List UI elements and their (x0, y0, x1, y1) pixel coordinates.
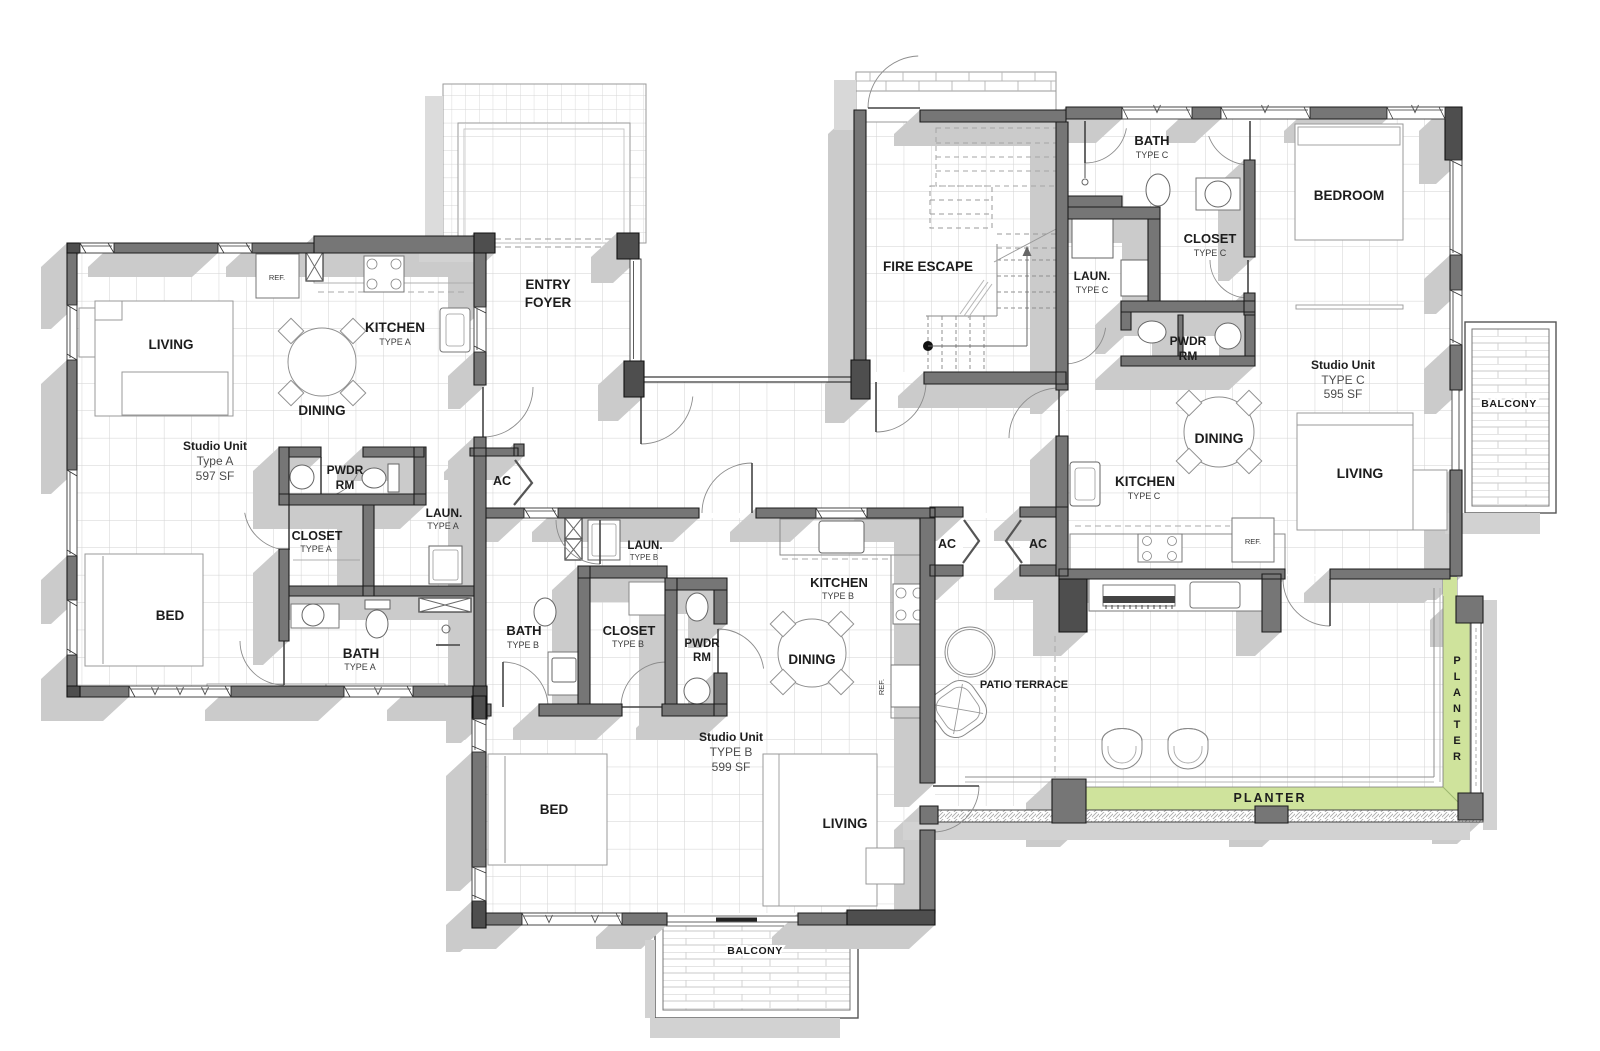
svg-text:CLOSET: CLOSET (292, 529, 343, 543)
svg-text:BEDROOM: BEDROOM (1314, 188, 1385, 203)
svg-text:BATH: BATH (343, 646, 380, 661)
svg-text:599 SF: 599 SF (712, 760, 751, 774)
svg-text:N: N (1453, 703, 1461, 715)
svg-text:REF.: REF. (877, 679, 886, 695)
svg-text:PWDR: PWDR (684, 638, 720, 650)
svg-text:LIVING: LIVING (822, 816, 867, 831)
svg-text:Studio Unit: Studio Unit (183, 439, 247, 453)
svg-text:AC: AC (493, 474, 511, 488)
svg-text:AC: AC (938, 537, 956, 551)
svg-text:KITCHEN: KITCHEN (810, 575, 868, 590)
svg-text:TYPE C: TYPE C (1136, 150, 1169, 160)
svg-text:TYPE B: TYPE B (507, 640, 539, 650)
svg-text:LAUN.: LAUN. (426, 506, 463, 520)
svg-text:E: E (1453, 735, 1460, 747)
svg-text:CLOSET: CLOSET (1184, 231, 1237, 246)
svg-text:BED: BED (540, 802, 569, 817)
svg-text:TYPE A: TYPE A (344, 662, 376, 672)
svg-text:TYPE A: TYPE A (379, 337, 411, 347)
svg-text:AC: AC (1029, 537, 1047, 551)
svg-text:595 SF: 595 SF (1324, 387, 1363, 401)
svg-text:TYPE C: TYPE C (1128, 491, 1161, 501)
svg-text:LIVING: LIVING (1337, 465, 1384, 481)
svg-text:CLOSET: CLOSET (603, 623, 656, 638)
svg-text:TYPE B: TYPE B (710, 745, 753, 759)
svg-text:RM: RM (1179, 349, 1198, 363)
svg-text:PATIO TERRACE: PATIO TERRACE (980, 679, 1068, 691)
svg-text:BATH: BATH (1134, 133, 1169, 148)
svg-text:ENTRY: ENTRY (525, 277, 570, 292)
svg-text:PWDR: PWDR (327, 463, 364, 477)
svg-text:TYPE A: TYPE A (300, 544, 332, 554)
svg-text:TYPE C: TYPE C (1321, 373, 1365, 387)
svg-text:Type A: Type A (197, 454, 234, 468)
svg-text:FIRE ESCAPE: FIRE ESCAPE (883, 259, 973, 274)
svg-text:Studio Unit: Studio Unit (699, 730, 763, 744)
svg-text:DINING: DINING (298, 403, 345, 418)
svg-text:TYPE B: TYPE B (612, 639, 644, 649)
svg-text:RM: RM (693, 652, 711, 664)
svg-text:LAUN.: LAUN. (1074, 269, 1111, 283)
svg-text:DINING: DINING (1195, 430, 1244, 446)
svg-text:FOYER: FOYER (525, 295, 572, 310)
svg-text:BED: BED (156, 608, 185, 623)
svg-text:KITCHEN: KITCHEN (1115, 474, 1175, 489)
svg-text:BALCONY: BALCONY (727, 945, 782, 957)
svg-text:LIVING: LIVING (148, 337, 193, 352)
svg-text:TYPE A: TYPE A (427, 521, 459, 531)
svg-text:REF.: REF. (1245, 537, 1261, 546)
svg-text:BALCONY: BALCONY (1481, 398, 1536, 410)
svg-text:REF.: REF. (269, 273, 285, 282)
svg-text:PWDR: PWDR (1170, 334, 1207, 348)
svg-text:L: L (1454, 671, 1461, 683)
svg-text:BATH: BATH (506, 623, 541, 638)
svg-text:KITCHEN: KITCHEN (365, 320, 425, 335)
svg-text:Studio Unit: Studio Unit (1311, 358, 1375, 372)
svg-text:P: P (1453, 655, 1460, 667)
svg-text:R: R (1453, 751, 1461, 763)
svg-text:RM: RM (336, 478, 355, 492)
svg-text:T: T (1454, 719, 1461, 731)
svg-text:597 SF: 597 SF (196, 469, 235, 483)
svg-text:A: A (1453, 687, 1461, 699)
svg-text:PLANTER: PLANTER (1233, 791, 1306, 805)
svg-text:DINING: DINING (788, 652, 835, 667)
svg-text:TYPE B: TYPE B (822, 591, 854, 601)
svg-text:TYPE C: TYPE C (1194, 248, 1227, 258)
svg-text:TYPE C: TYPE C (1076, 285, 1109, 295)
svg-text:TYPE B: TYPE B (630, 553, 658, 562)
svg-text:LAUN.: LAUN. (627, 540, 662, 552)
